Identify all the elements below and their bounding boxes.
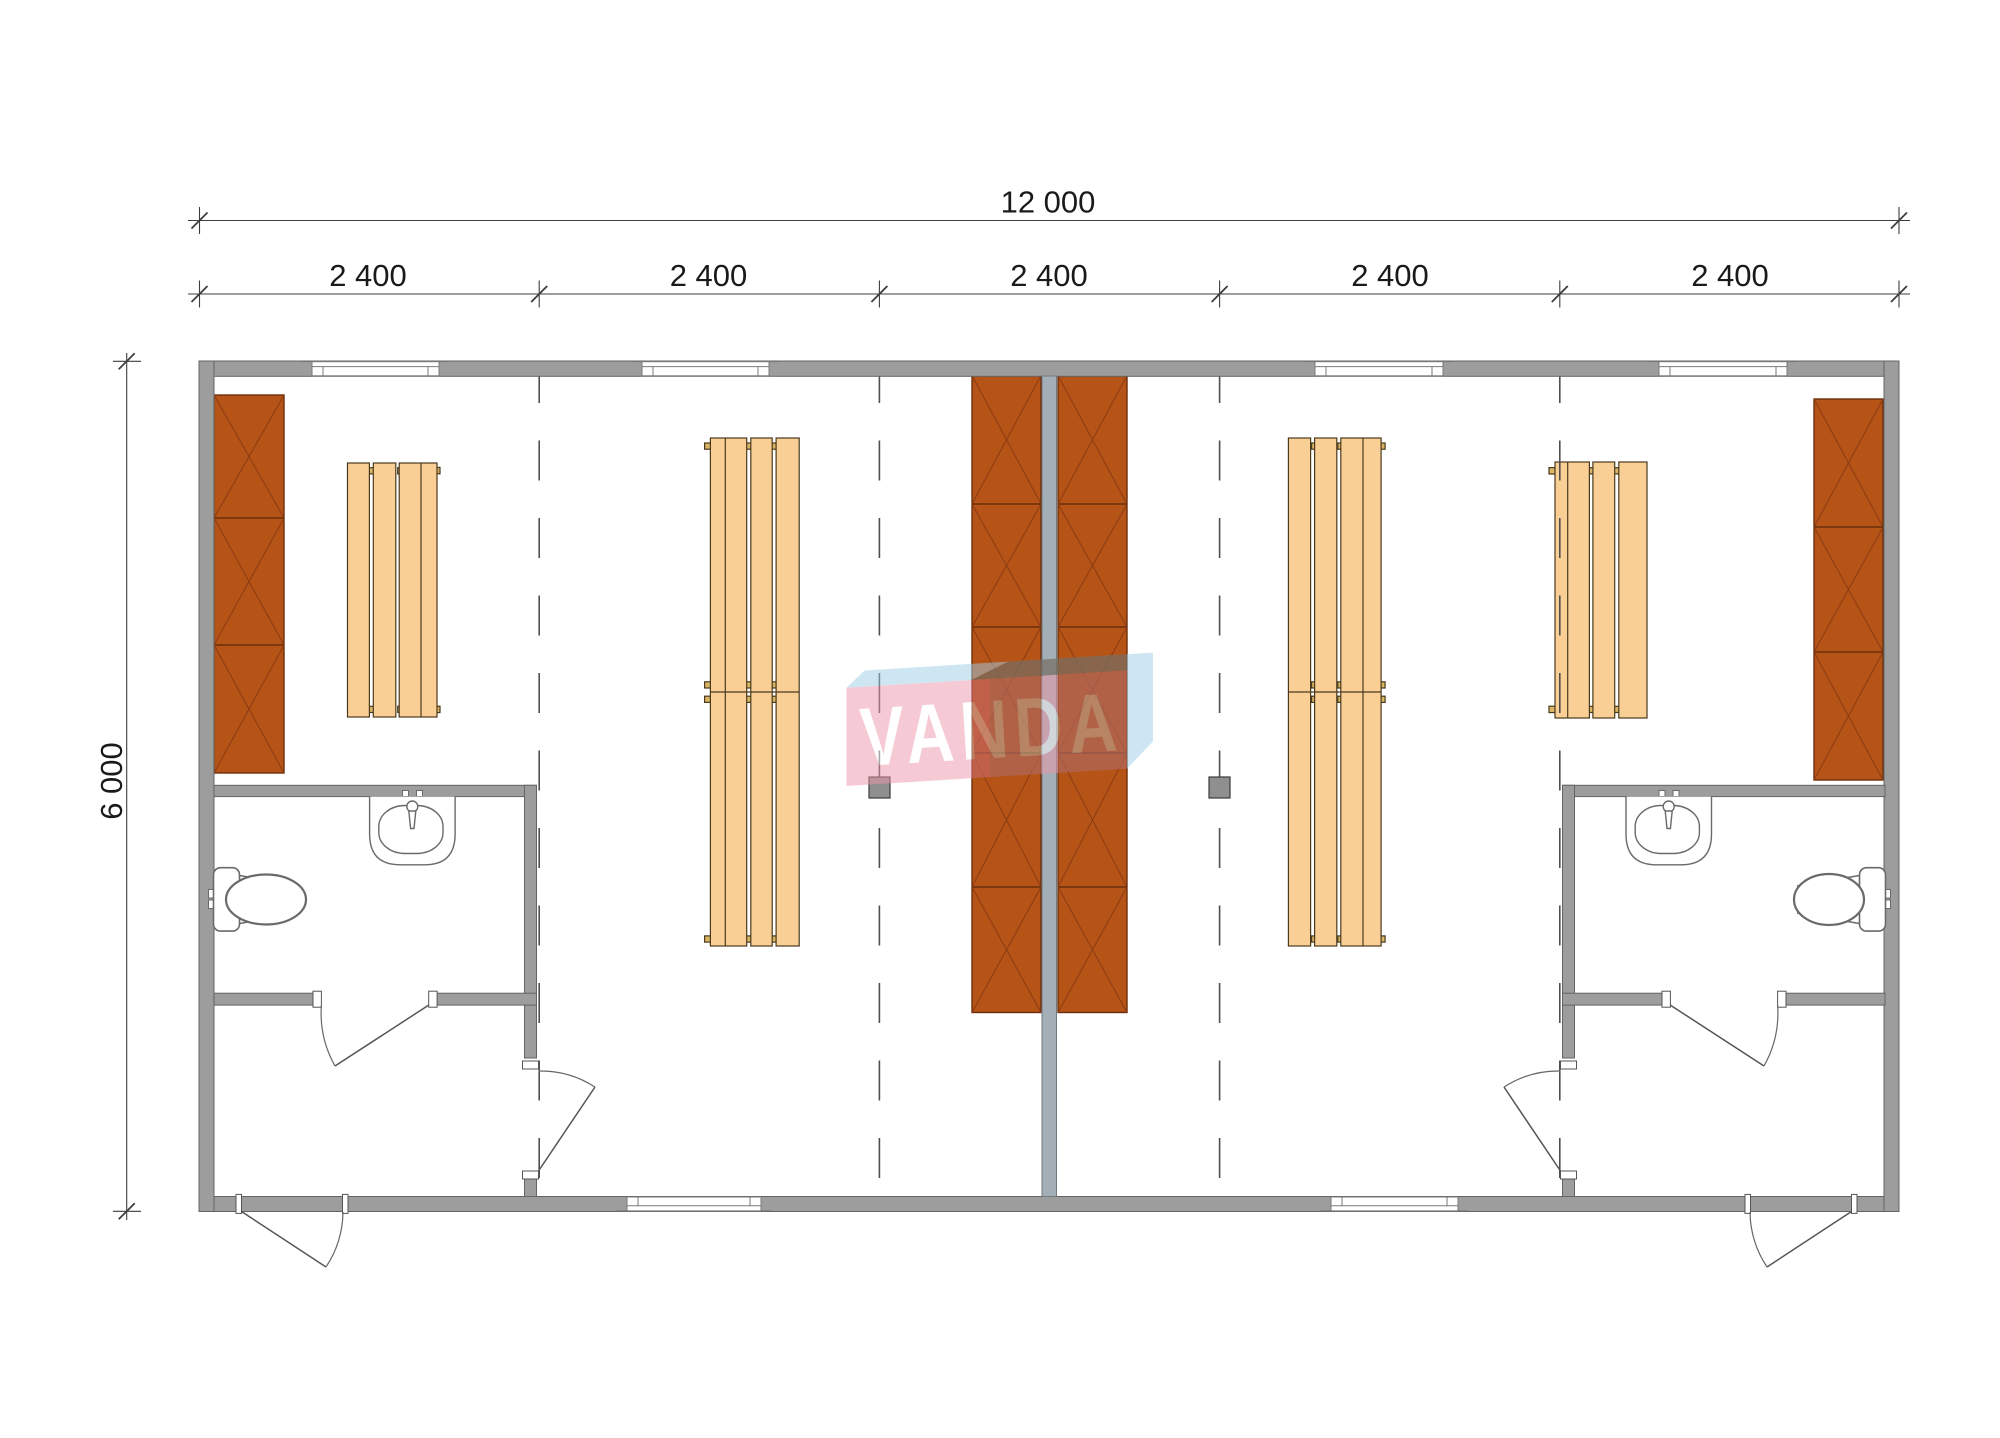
svg-text:6 000: 6 000 [94,742,129,820]
svg-text:2 400: 2 400 [329,258,407,293]
svg-text:2 400: 2 400 [1010,258,1088,293]
svg-text:2 400: 2 400 [670,258,748,293]
svg-text:12 000: 12 000 [1001,185,1096,220]
svg-text:2 400: 2 400 [1351,258,1429,293]
svg-text:2 400: 2 400 [1691,258,1769,293]
